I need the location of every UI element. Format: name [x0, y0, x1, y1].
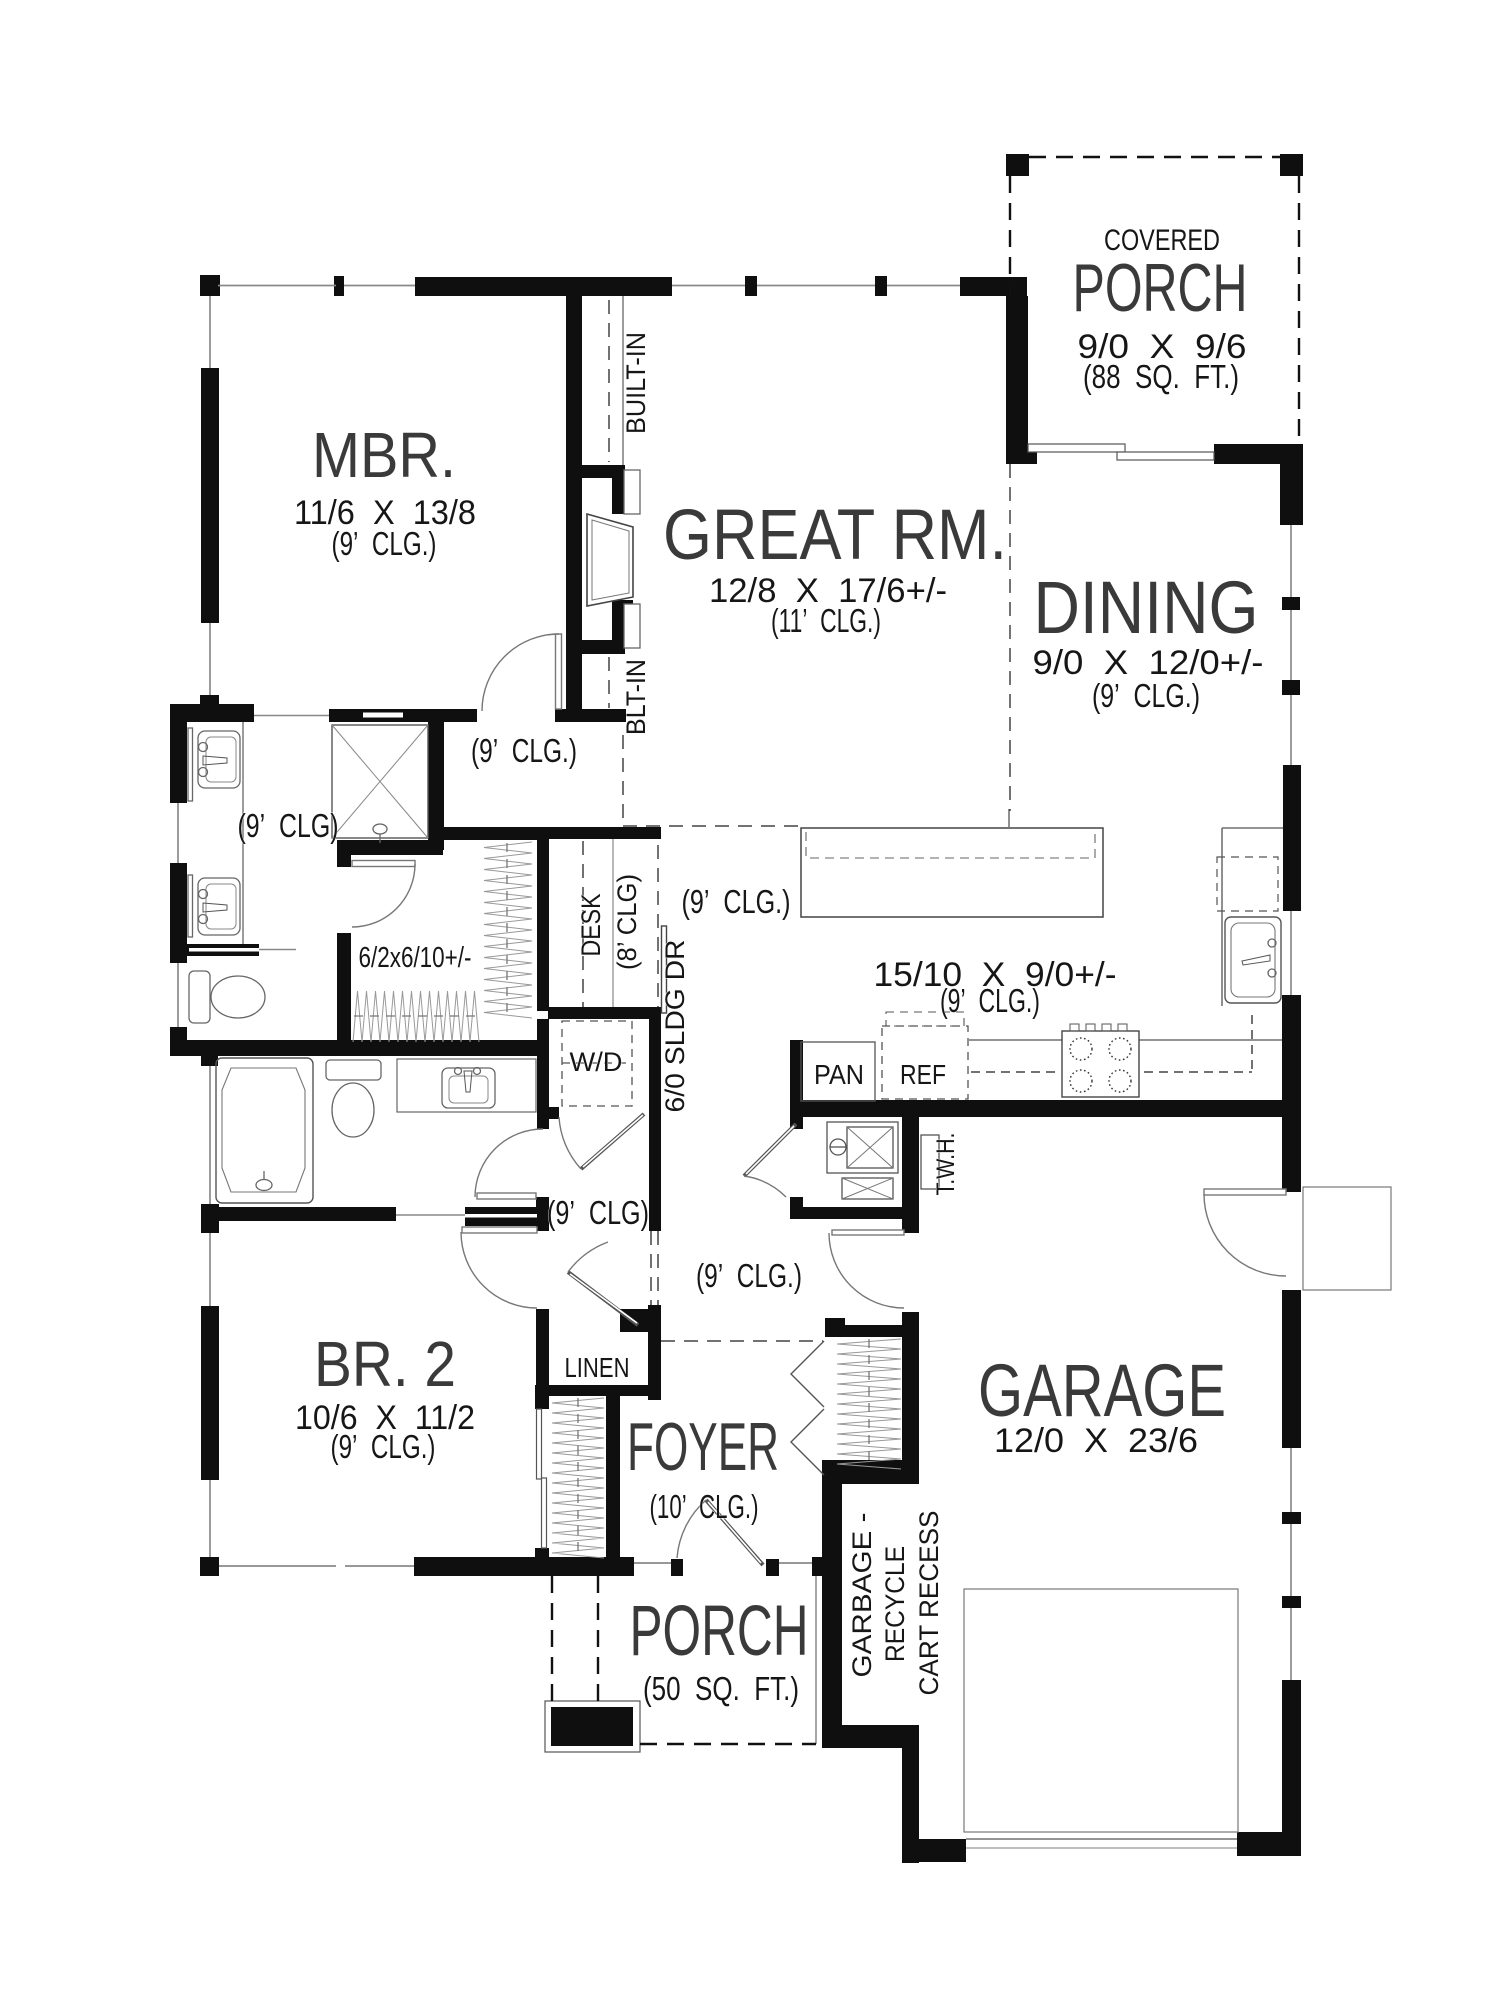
- svg-text:GARBAGE -: GARBAGE -: [847, 1513, 877, 1678]
- svg-text:RECYCLE: RECYCLE: [880, 1546, 910, 1662]
- svg-text:(50 SQ. FT.): (50 SQ. FT.): [643, 1670, 799, 1707]
- svg-text:(11’ CLG.): (11’ CLG.): [771, 602, 881, 639]
- svg-text:BLT-IN: BLT-IN: [621, 659, 651, 735]
- svg-text:(9’ CLG): (9’ CLG): [547, 1194, 649, 1231]
- svg-text:FOYER: FOYER: [627, 1409, 779, 1485]
- svg-text:(88 SQ. FT.): (88 SQ. FT.): [1083, 358, 1239, 395]
- svg-text:(9’ CLG.): (9’ CLG.): [682, 883, 791, 920]
- svg-text:(9’ CLG.): (9’ CLG.): [331, 1428, 436, 1465]
- svg-text:DINING: DINING: [1034, 566, 1259, 649]
- svg-text:PORCH: PORCH: [1073, 250, 1248, 326]
- svg-text:PAN: PAN: [814, 1059, 864, 1090]
- svg-text:12/0 X 23/6: 12/0 X 23/6: [994, 1422, 1198, 1460]
- svg-text:(9’ CLG.): (9’ CLG.): [940, 982, 1040, 1019]
- svg-text:MBR.: MBR.: [312, 419, 456, 491]
- svg-text:(9’ CLG): (9’ CLG): [238, 807, 339, 844]
- svg-text:(9’ CLG.): (9’ CLG.): [332, 525, 437, 562]
- svg-text:(9’ CLG.): (9’ CLG.): [696, 1257, 802, 1294]
- svg-text:(8’ CLG): (8’ CLG): [612, 874, 642, 970]
- svg-text:LINEN: LINEN: [565, 1352, 630, 1383]
- svg-text:(9’ CLG.): (9’ CLG.): [471, 732, 577, 769]
- svg-text:W/D: W/D: [570, 1047, 623, 1077]
- svg-text:GARAGE: GARAGE: [978, 1349, 1226, 1432]
- svg-text:GREAT RM.: GREAT RM.: [663, 496, 1007, 575]
- svg-text:PORCH: PORCH: [630, 1592, 809, 1671]
- svg-text:BR. 2: BR. 2: [314, 1328, 456, 1400]
- svg-text:BUILT-IN: BUILT-IN: [621, 332, 651, 434]
- svg-text:T.W.H.: T.W.H.: [932, 1133, 960, 1196]
- svg-text:REF: REF: [900, 1059, 946, 1090]
- svg-text:(9’ CLG.): (9’ CLG.): [1092, 677, 1200, 714]
- svg-text:(10’ CLG.): (10’ CLG.): [650, 1488, 759, 1525]
- svg-text:DESK: DESK: [576, 894, 606, 957]
- svg-text:6/0 SLDG DR: 6/0 SLDG DR: [660, 940, 690, 1113]
- svg-text:CART RECESS: CART RECESS: [914, 1511, 944, 1696]
- svg-text:6/2x6/10+/-: 6/2x6/10+/-: [359, 942, 472, 974]
